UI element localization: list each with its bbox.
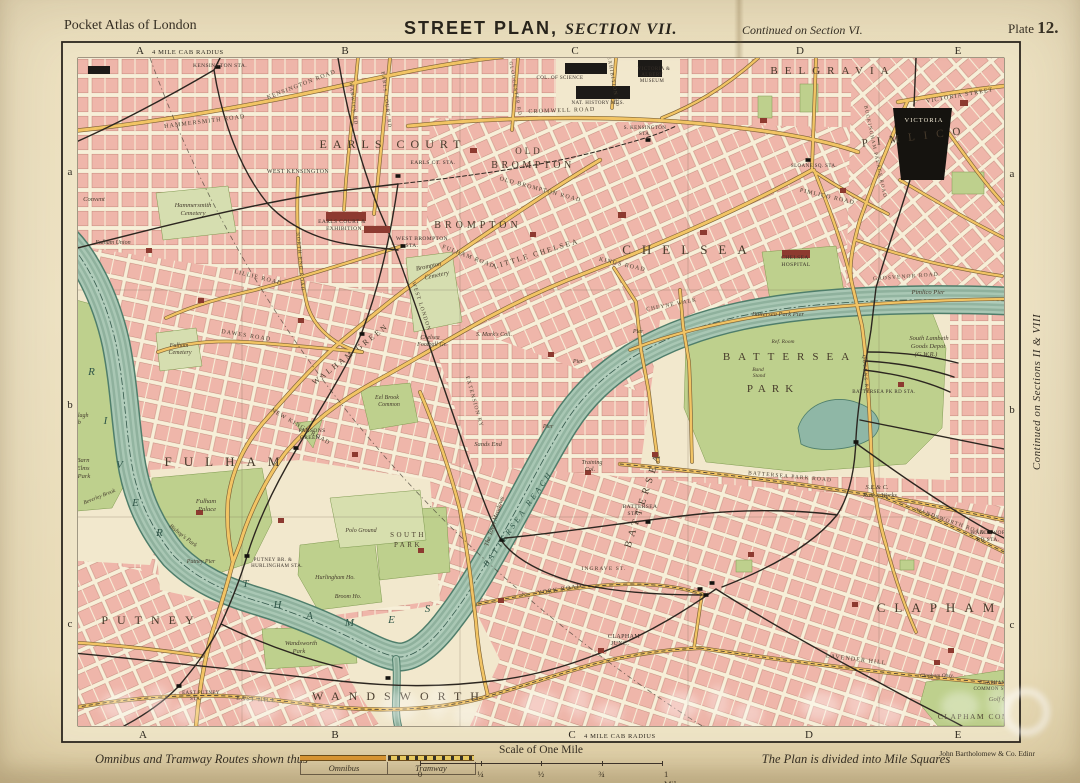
page-title-main: STREET PLAN, [404,18,558,38]
map-label: M [344,617,355,629]
station-marker [396,174,401,178]
building [618,212,626,218]
map-label: EARLS COURT & [318,219,366,225]
map-label: Stand [753,373,766,379]
map-label: Hurlingham Ho. [314,575,355,581]
map-label: T [242,578,249,590]
grid-letter-right: b [1009,404,1015,416]
map-label: CLAPHAM [608,634,640,640]
map-label: Col. [585,467,595,473]
map-label: STA. [628,511,641,517]
scale-tick-label: ¼ [477,769,483,779]
map-label: BATTERSEA [723,351,857,363]
building [364,226,390,233]
building [898,382,904,387]
continued-note-right: Continued on Sections II & VIII [1031,313,1043,470]
map-label: Fulham [195,498,217,505]
map-label: Fulham Union [94,240,130,246]
map-label: South Lambeth [909,335,948,342]
map-label: WEST KENSINGTON [267,169,330,175]
atlas-title: Pocket Atlas of London [64,18,197,34]
grid-letter-top: B [341,45,348,57]
map-label: Railw. Works [862,492,897,499]
map-label: Fulham [169,343,189,349]
grid-letter-left: b [67,399,73,411]
map-label: SOUTH [390,531,426,539]
map-label: Pier [542,424,554,430]
building [498,598,504,603]
map-label: (G.W.R.) [915,351,938,358]
map-label: Pimlico Pier [910,289,945,296]
publisher-credit: John Bartholomew & Co. Edinr [885,749,1035,758]
map-label: Common [378,402,400,408]
cab-radius-note-bottom: 4 MILE CAB RADIUS [584,733,656,740]
map-label: BATTERSEA PK RD STA. [852,390,915,395]
building [146,248,152,253]
grid-letter-left: c [68,618,73,630]
station-marker [245,554,250,558]
station-marker [704,593,709,597]
grid-letter-top: C [571,45,578,57]
map-label: STA. [190,697,202,702]
scale-tick [602,761,603,766]
map-label: Convent [83,196,105,203]
scale-tick-label: ½ [538,769,544,779]
scale-tick-label: 1 Mile [664,769,680,783]
map-label: STA. [639,132,651,137]
map-label: Polo Ground [344,528,377,534]
building [548,352,554,357]
map-label: INGRAVE ST. [582,566,627,572]
grid-letter-bottom: B [331,729,338,741]
map-label: STA. [406,243,419,249]
map-label: CLAPHAM [877,600,1004,615]
map-label: V [116,459,124,471]
map-label: NAT. HISTORY MUS. [571,101,624,106]
cab-radius-note-top: 4 MILE CAB RADIUS [152,49,224,56]
map-label: GREEN [300,435,320,441]
map-label: Clapham Obsy. [920,673,954,679]
scale-tick [662,761,663,766]
map-label: OLD [515,146,543,156]
station-marker [806,158,811,162]
map-label: PUTNEY [101,613,202,627]
station-marker [360,332,365,336]
station-marker [177,684,182,688]
public-building [576,86,630,99]
map-label: ALBERT [641,73,663,78]
building [960,100,968,106]
scale-tick-label: ¾ [598,769,604,779]
public-building [565,63,607,74]
map-label: Palace [197,506,216,513]
map-label: R [87,366,96,378]
building [278,518,284,523]
map-label: Goods Depot [911,343,946,350]
paper-fold-crease [734,0,744,58]
grid-letter-top: A [136,45,144,57]
station-marker [294,446,299,450]
map-label: R [155,527,164,539]
omnibus-label: Omnibus [301,762,388,774]
grid-letter-bottom: A [139,729,147,741]
map-label: Battersea Park Pier [752,311,804,318]
map-label: PARK [747,383,799,395]
map-label: S [425,603,432,615]
building [598,648,604,653]
map-label: Pier [632,329,644,335]
building [840,188,846,193]
omnibus-route-swatch [300,755,386,761]
map-label: Broom Ho. [335,594,361,600]
map-label: I [103,415,109,427]
scale-tick [541,761,542,766]
public-building [88,66,110,74]
page-title-section: SECTION VII. [565,21,677,38]
station-marker [646,520,651,524]
map-label: Football Gr. [416,342,447,348]
map-label: BELGRAVIA [770,65,895,77]
map-label: BROMPTON [434,220,521,231]
map-label: A [305,610,314,622]
map-label: Training [582,460,603,466]
map-label: PARSONS [298,428,325,434]
map-label: WEST BROMPTON [396,236,448,242]
map-label: EAST PUTNEY [182,691,220,696]
grid-letter-bottom: C [568,729,575,741]
map-label: CLAPHAM [979,681,1006,686]
map-label: RD STA. [976,537,999,543]
map-label: H [273,599,283,611]
map-label: PUTNEY BR. & [254,558,293,563]
map-label: Hammersmith [174,202,212,209]
scale-tick-label: 0 [418,769,422,779]
map-label: JUNC. [611,641,630,647]
building [352,452,358,457]
map-label: S.E.& C. [865,484,888,491]
map-label: VICTORIA [905,117,944,124]
map-label: VICTORIA & [638,67,671,72]
grid-letter-right: a [1010,168,1015,180]
scale-tick [481,761,482,766]
grid-letter-bottom: D [805,729,813,741]
map-label: Sands End [474,441,502,448]
map-label: S. KENSINGTON [624,126,667,131]
map-label: PARK [394,541,422,549]
map-label: CHELSEA [781,255,809,261]
plate-num: 12. [1037,18,1058,37]
map-label: BATTERSEA [623,504,658,510]
map-label: Cemetery [181,210,206,217]
plate-word: Plate [1008,21,1034,36]
station-marker [386,676,391,680]
map-label: HOSPITAL [781,262,811,268]
building [748,552,754,557]
grid-letter-right: c [1010,619,1015,631]
map-label: S. Mark's Coll. [476,332,512,338]
map-label: BROMPTON [491,160,574,171]
scale-bar: 0¼½¾1 Mile [420,763,662,766]
map-label: FULHAM [165,454,292,469]
page-title: STREET PLAN, SECTION VII. [404,18,678,39]
map-label: Wandsworth [285,640,317,647]
map-label: E [387,614,396,626]
map-label: Park [77,473,91,480]
building [852,602,858,607]
map-label: Chelsea [420,335,439,341]
map-label: SLOANE SQ. STA. [791,164,837,169]
map-label: Park [292,648,306,655]
building [760,118,767,123]
map-label: Putney Pier [186,559,216,565]
station-marker [646,138,651,142]
map-label: Cemetery [169,350,192,356]
map-label: COL. OF SCIENCE [537,76,584,81]
grid-letter-left: a [68,166,73,178]
building [530,232,536,237]
map-label: EXHIBITION [326,226,362,232]
station-marker [710,581,715,585]
scale-tick [420,761,421,766]
map-label: Eel Brook [374,395,399,401]
scale-title: Scale of One Mile [420,744,662,756]
grid-letter-bottom: E [955,729,962,741]
grid-letter-top: E [955,45,962,57]
building [948,648,954,653]
map-label: Pier [572,359,584,365]
continued-note-top: Continued on Section VI. [742,23,863,38]
map-label: E [131,497,140,509]
station-marker [854,440,859,444]
map-label: MUSEUM [640,79,665,84]
map-label: CHELSEA [622,242,758,257]
station-marker [698,587,703,591]
grid-letter-top: D [796,45,804,57]
building [470,148,477,153]
building [198,298,204,303]
map-plate: Pocket Atlas of London STREET PLAN, SECT… [0,0,1080,783]
map-label: Barn [77,457,90,464]
building [298,318,304,323]
map-label: KENSINGTON STA. [193,63,247,69]
building [700,230,707,235]
building [934,660,940,665]
map-label: EARLS COURT [320,137,467,151]
map-label: EARLS CT. STA. [410,160,455,166]
street-plan-map: EARLS COURTOLDBROMPTONBROMPTONLITTLE CHE… [0,0,1080,783]
map-label: HURLINGHAM STA. [251,564,303,569]
plate-number: Plate 12. [1008,18,1059,38]
routes-legend-caption: Omnibus and Tramway Routes shown thus [95,752,308,767]
map-label: WANDSWORTH [312,689,488,703]
map-label: Ref. Room [771,338,795,345]
